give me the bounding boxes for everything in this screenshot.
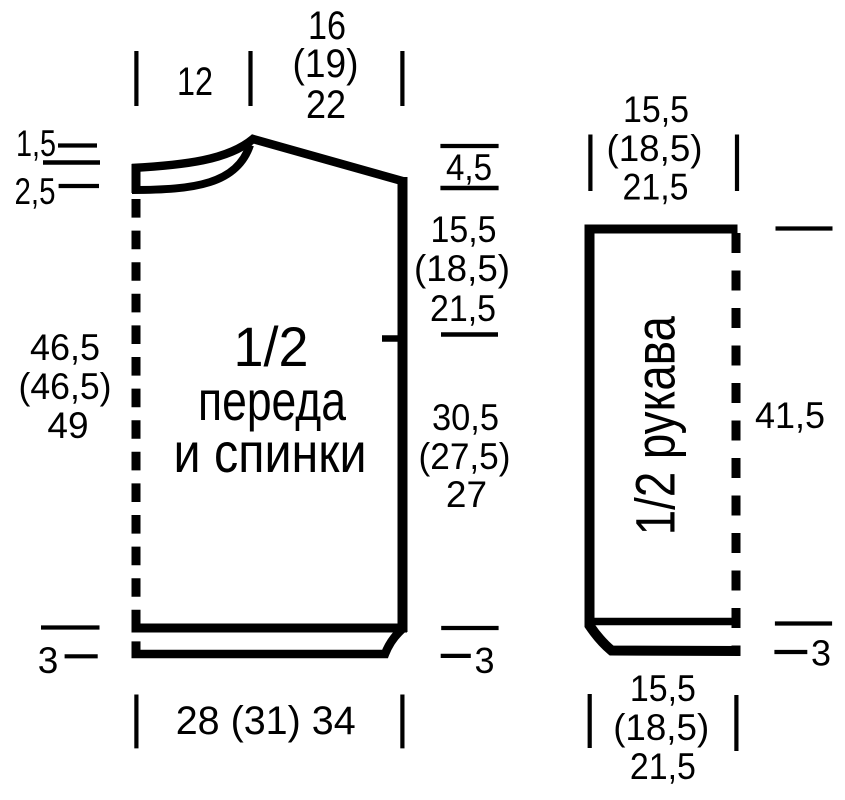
svg-text:41,5: 41,5 <box>755 395 825 436</box>
svg-text:3: 3 <box>811 633 831 674</box>
svg-text:49: 49 <box>47 405 88 446</box>
svg-text:15,5: 15,5 <box>630 668 696 709</box>
svg-text:21,5: 21,5 <box>623 167 689 208</box>
svg-text:28 (31) 34: 28 (31) 34 <box>176 699 356 743</box>
svg-text:1/2 рукава: 1/2 рукава <box>624 316 687 536</box>
svg-text:(18,5): (18,5) <box>414 248 510 289</box>
svg-text:15,5: 15,5 <box>623 89 689 130</box>
svg-text:21,5: 21,5 <box>630 746 696 787</box>
svg-text:3: 3 <box>38 640 59 681</box>
svg-text:(46,5): (46,5) <box>19 366 112 407</box>
svg-text:3: 3 <box>474 640 494 681</box>
svg-text:и спинки: и спинки <box>174 421 367 484</box>
svg-text:12: 12 <box>177 60 213 104</box>
svg-text:22: 22 <box>306 83 346 127</box>
svg-text:(18,5): (18,5) <box>607 128 703 169</box>
svg-text:1,5: 1,5 <box>16 123 56 164</box>
svg-text:15,5: 15,5 <box>431 209 497 250</box>
svg-text:21,5: 21,5 <box>430 288 496 329</box>
svg-text:30,5: 30,5 <box>432 397 499 438</box>
svg-text:2,5: 2,5 <box>15 171 56 212</box>
svg-text:46,5: 46,5 <box>30 327 100 368</box>
svg-text:(18,5): (18,5) <box>613 707 709 748</box>
svg-text:4,5: 4,5 <box>446 147 492 188</box>
svg-text:(27,5): (27,5) <box>419 436 511 477</box>
svg-text:(19): (19) <box>293 42 359 86</box>
svg-text:27: 27 <box>446 474 487 515</box>
